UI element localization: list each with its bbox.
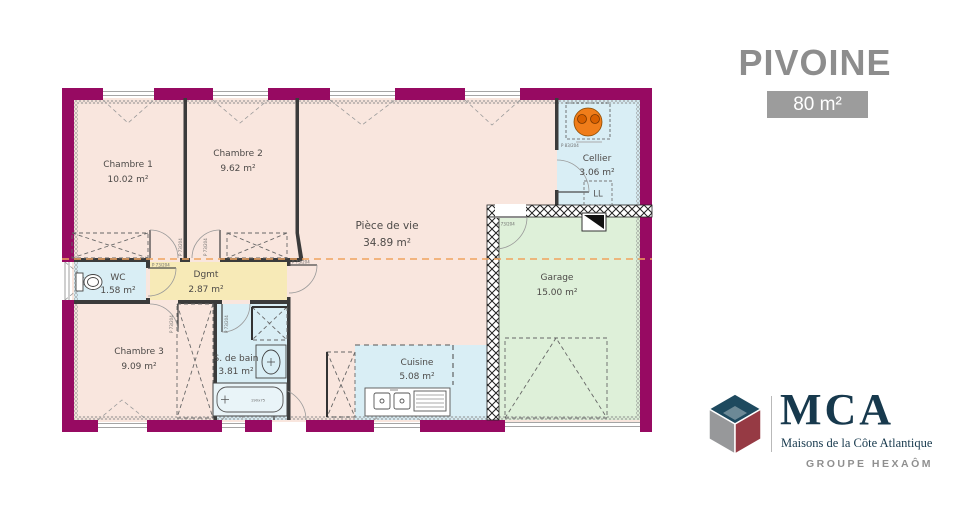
room-name: Garage	[541, 273, 574, 283]
room-area: 9.62 m²	[220, 164, 256, 174]
door-label: P 73/204	[224, 315, 229, 333]
room-name: Dgmt	[194, 270, 219, 280]
room-area: 2.87 m²	[188, 285, 224, 295]
door-label: P 73/204	[152, 263, 170, 268]
door-label: P 73/204	[292, 260, 310, 265]
room-area: 34.89 m²	[363, 237, 411, 249]
washing-machine-label: LL	[593, 190, 603, 200]
room-area: 5.08 m²	[399, 372, 435, 382]
area-badge: 80 m²	[767, 91, 868, 118]
floor-plan: 190x75 LL	[60, 85, 655, 440]
brand-tagline: Maisons de la Côte Atlantique	[781, 436, 941, 451]
room-name: Cellier	[583, 154, 612, 164]
room-area: 3.81 m²	[218, 367, 254, 377]
room-area: 10.02 m²	[107, 175, 148, 185]
room-area: 9.09 m²	[121, 362, 157, 372]
mca-cube-icon	[705, 392, 765, 458]
kitchen-sink-icon	[365, 388, 450, 416]
room-area: 3.06 m²	[579, 168, 615, 178]
room-name: WC	[110, 273, 125, 283]
room-name: S. de bain	[214, 354, 259, 364]
room-name: Pièce de vie	[355, 220, 418, 232]
door-label: P 73/204	[497, 222, 515, 227]
logo-divider	[771, 396, 772, 452]
brand-group: GROUPE HEXAÔM	[781, 458, 933, 470]
room-area: 1.58 m²	[100, 286, 136, 296]
room-name: Chambre 2	[213, 149, 263, 159]
brand-logo: MCA Maisons de la Côte Atlantique GROUPE…	[705, 388, 935, 478]
attic-hatch-icon	[582, 213, 606, 231]
bathtub-icon: 190x75	[213, 383, 287, 416]
door-label: P 73/204	[169, 315, 174, 333]
page-title: PIVOINE	[700, 42, 930, 84]
brand-name: MCA	[780, 384, 894, 435]
page: 190x75 LL	[0, 0, 960, 532]
room-name: Cuisine	[401, 358, 434, 368]
room-name: Chambre 1	[103, 160, 153, 170]
door-label: P 83/204	[561, 143, 579, 148]
door-label: P 73/204	[203, 238, 208, 256]
room-fill-garage	[499, 217, 640, 420]
toilet-icon	[76, 273, 102, 291]
bathtub-size-label: 190x75	[251, 398, 266, 403]
floor-plan-svg: 190x75 LL	[60, 85, 655, 440]
room-name: Chambre 3	[114, 347, 164, 357]
room-area: 15.00 m²	[536, 288, 577, 298]
door-label: P 73/204	[178, 238, 183, 256]
